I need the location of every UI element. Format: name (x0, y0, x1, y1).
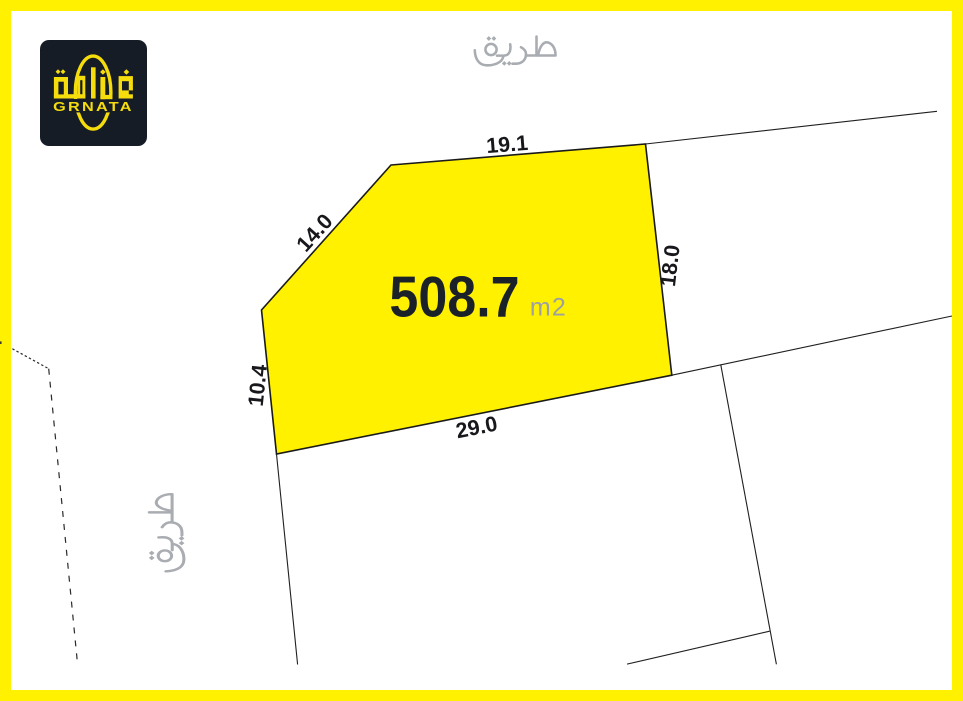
svg-text:19.1: 19.1 (485, 131, 529, 158)
svg-text:10.4: 10.4 (244, 363, 272, 407)
svg-text:508.7: 508.7 (389, 266, 519, 330)
svg-text:m2: m2 (530, 294, 567, 322)
svg-text:18.0: 18.0 (656, 244, 685, 288)
svg-text:GRNATA: GRNATA (53, 100, 134, 114)
